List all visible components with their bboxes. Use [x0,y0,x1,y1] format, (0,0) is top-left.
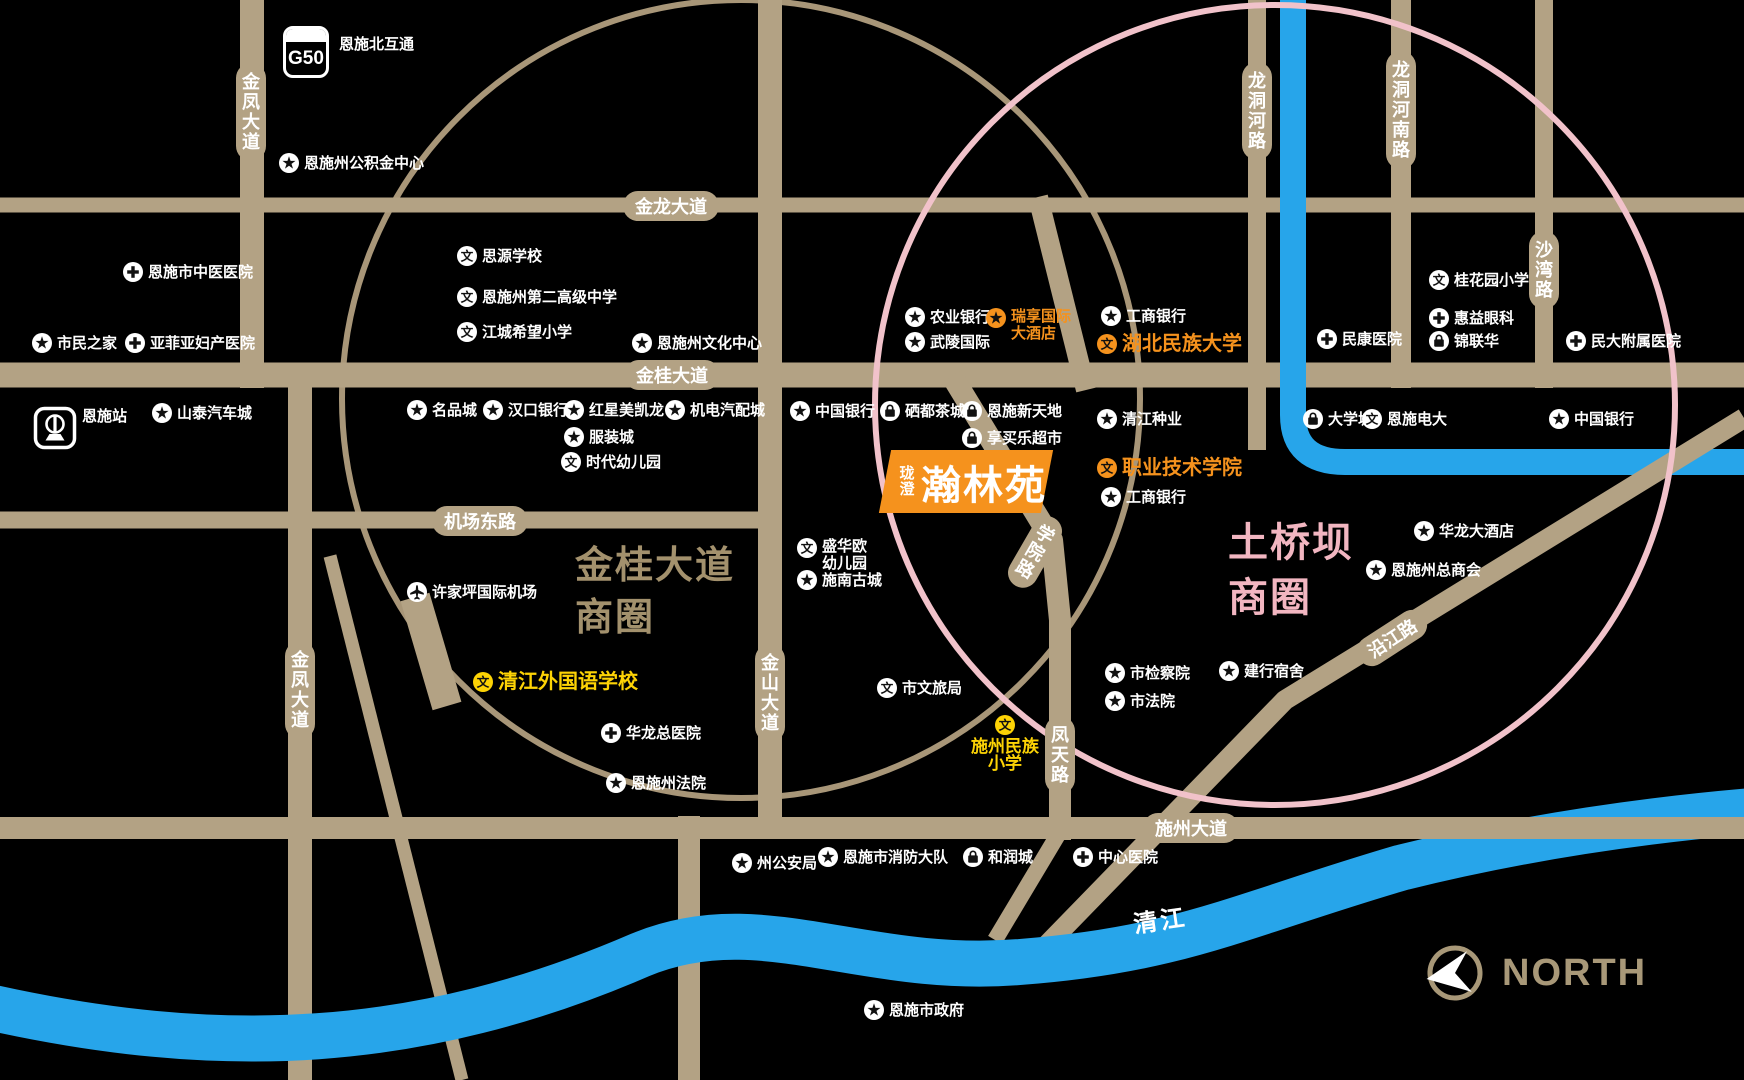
poi-label: 湖北民族大学 [1122,336,1242,353]
map-poi: 清江种业 [1097,409,1182,429]
road-label: 机场东路 [432,506,528,536]
poi-label: 机电汽配城 [690,402,765,419]
poi-label: 惠益眼科 [1454,310,1514,327]
svg-text:文: 文 [461,290,474,305]
star-icon [279,153,299,173]
school-icon: 文 [995,715,1015,735]
school-icon: 文 [1097,334,1117,354]
poi-label: 和润城 [988,849,1033,866]
school-icon: 文 [473,672,493,692]
svg-text:文: 文 [1101,461,1114,476]
bag-icon [1429,331,1449,351]
highway-code: G50 [286,42,326,75]
map-poi: 机电汽配城 [665,400,765,420]
map-poi: 亚菲亚妇产医院 [125,333,255,353]
star-icon [1105,691,1125,711]
hospital-icon [1317,329,1337,349]
map-poi: 中国银行 [790,401,875,421]
star-icon [1101,306,1121,326]
poi-label: 锦联华 [1454,333,1499,350]
map-poi: 瑞享国际大酒店 [986,308,1071,342]
map-poi: 中心医院 [1073,847,1158,867]
poi-label: 民大附属医院 [1591,333,1681,350]
school-icon: 文 [457,287,477,307]
poi-label: 中国银行 [1574,411,1634,428]
poi-label: 恩施电大 [1387,411,1447,428]
bag-icon [962,401,982,421]
district-label: 土桥坝商圈 [1228,516,1354,626]
star-icon [986,308,1006,328]
river-label: 清江 [1131,897,1189,939]
poi-label: 民康医院 [1342,331,1402,348]
poi-label: 工商银行 [1126,308,1186,325]
star-icon [1219,661,1239,681]
map-poi: 名品城 [407,400,477,420]
map-poi: 文 清江外国语学校 [473,672,638,692]
star-icon [564,400,584,420]
poi-label: 恩施市消防大队 [843,849,948,866]
compass-arrow-icon [1424,942,1486,1004]
road-label: 龙洞河路 [1242,62,1272,160]
district-label: 金桂大道商圈 [575,540,735,645]
star-icon [905,332,925,352]
project-name: 瀚林苑 [921,453,1047,511]
g50-shield-icon: G50 [283,26,329,78]
road-label: 凤天路 [1045,716,1075,794]
poi-label: 武陵国际 [930,334,990,351]
map-poi: 红星美凯龙 [564,400,664,420]
star-icon [32,333,52,353]
project-banner: 珑澄 瀚林苑 [885,450,1047,513]
road-label: 施州大道 [1143,813,1239,843]
star-icon [1097,409,1117,429]
poi-label: 清江种业 [1122,411,1182,428]
map-poi: 文 江城希望小学 [457,322,572,342]
map-poi: 许家坪国际机场 [407,582,537,602]
hospital-icon [1566,331,1586,351]
star-icon [790,401,810,421]
road-label: 沙湾路 [1529,231,1559,309]
map-poi: 民康医院 [1317,329,1402,349]
poi-label: 恩施新天地 [987,403,1062,420]
compass-label: NORTH [1502,952,1647,995]
svg-text:文: 文 [999,718,1012,733]
star-icon [1366,560,1386,580]
map-poi: 服装城 [564,427,634,447]
star-icon [606,773,626,793]
map-poi: 恩施州总商会 [1366,560,1481,580]
map-poi: 建行宿舍 [1219,661,1304,681]
map-poi: 恩施州文化中心 [632,333,762,353]
poi-label: 职业技术学院 [1122,460,1242,477]
road-label: 金龙大道 [623,191,719,221]
star-icon [1549,409,1569,429]
map-poi: 中国银行 [1549,409,1634,429]
location-map: G50 恩施北互通 珑澄 瀚林苑 清江 NORTH 恩施州公积金中心 恩施市中医… [0,0,1744,1080]
poi-label: 盛华欧幼儿园 [822,538,867,572]
road-label: 金凤大道 [285,641,315,739]
hospital-icon [1429,308,1449,328]
poi-label: 农业银行 [930,309,990,326]
map-poi: 恩施站 [33,406,127,450]
poi-label: 许家坪国际机场 [432,584,537,601]
poi-label: 州公安局 [757,855,817,872]
poi-label: 恩施州法院 [631,775,706,792]
bag-icon [962,428,982,448]
poi-label: 华龙大酒店 [1439,523,1514,540]
star-icon [1101,487,1121,507]
poi-label: 建行宿舍 [1244,663,1304,680]
poi-label: 工商银行 [1126,489,1186,506]
poi-label: 江城希望小学 [482,324,572,341]
svg-text:文: 文 [881,681,894,696]
map-poi: 文 恩施州第二高级中学 [457,287,617,307]
star-icon [152,403,172,423]
poi-label: 硒都茶城 [905,403,965,420]
map-poi: 恩施新天地 [962,401,1062,421]
air-runway [415,597,447,706]
map-poi: 州公安局 [732,853,817,873]
school-icon: 文 [1429,270,1449,290]
shield-cap [286,29,326,42]
road-label: 龙洞河南路 [1386,51,1416,169]
school-icon: 文 [457,322,477,342]
poi-label: 市检察院 [1130,665,1190,682]
star-icon [864,1000,884,1020]
road-label: 金凤大道 [236,63,266,161]
svg-text:文: 文 [477,675,490,690]
svg-text:文: 文 [461,325,474,340]
map-poi: 文 盛华欧幼儿园 [797,538,867,572]
map-poi: 文 职业技术学院 [1097,458,1242,478]
map-poi: 山泰汽车城 [152,403,252,423]
svg-text:文: 文 [801,541,814,556]
hospital-icon [1073,847,1093,867]
svg-text:文: 文 [1101,337,1114,352]
poi-label: 服装城 [589,429,634,446]
poi-label: 恩施州文化中心 [657,335,762,352]
school-icon: 文 [1097,458,1117,478]
poi-label: 红星美凯龙 [589,402,664,419]
project-prefix: 珑澄 [899,466,915,498]
map-poi: 文 时代幼儿园 [561,452,661,472]
hospital-icon [601,723,621,743]
school-icon: 文 [561,452,581,472]
bag-icon [963,847,983,867]
map-poi: 享买乐超市 [962,428,1062,448]
map-poi: 华龙大酒店 [1414,521,1514,541]
svg-text:文: 文 [1366,412,1379,427]
star-icon [483,400,503,420]
poi-label: 山泰汽车城 [177,405,252,422]
poi-label: 清江外国语学校 [498,674,638,691]
school-icon: 文 [457,246,477,266]
map-poi: 恩施市消防大队 [818,847,948,867]
map-poi: 恩施市政府 [864,1000,964,1020]
map-poi: 硒都茶城 [880,401,965,421]
map-poi: 市检察院 [1105,663,1190,683]
star-icon [905,307,925,327]
map-poi: 文 湖北民族大学 [1097,334,1242,354]
poi-label: 恩施州总商会 [1391,562,1481,579]
map-poi: 文 思源学校 [457,246,542,266]
poi-label: 市文旅局 [902,680,962,697]
svg-text:文: 文 [565,455,578,470]
bag-icon [880,401,900,421]
map-poi: 市民之家 [32,333,117,353]
map-poi: 文 桂花园小学 [1429,270,1529,290]
star-icon [564,427,584,447]
map-poi: 武陵国际 [905,332,990,352]
star-icon [732,853,752,873]
hospital-icon [123,262,143,282]
poi-label: 恩施州第二高级中学 [482,289,617,306]
svg-text:文: 文 [461,249,474,264]
map-poi: 施南古城 [797,570,882,590]
map-poi: 锦联华 [1429,331,1499,351]
poi-label: 中心医院 [1098,849,1158,866]
star-icon [818,847,838,867]
poi-label: 时代幼儿园 [586,454,661,471]
poi-label: 名品城 [432,402,477,419]
plane-icon [407,582,427,602]
map-poi: 恩施市中医医院 [123,262,253,282]
poi-label: 华龙总医院 [626,725,701,742]
map-poi: 汉口银行 [483,400,568,420]
poi-label: 瑞享国际大酒店 [1011,308,1071,342]
poi-label: 汉口银行 [508,402,568,419]
poi-label: 恩施市政府 [889,1002,964,1019]
highway-interchange: G50 恩施北互通 [283,26,414,78]
road-label: 金山大道 [755,644,785,742]
map-poi: 工商银行 [1101,306,1186,326]
school-icon: 文 [797,538,817,558]
poi-label: 恩施站 [82,408,127,425]
svg-text:文: 文 [1433,273,1446,288]
poi-label: 恩施市中医医院 [148,264,253,281]
map-poi: 文 市文旅局 [877,678,962,698]
train-icon [33,406,77,450]
poi-label: 恩施州公积金中心 [304,155,424,172]
map-poi: 工商银行 [1101,487,1186,507]
map-poi: 文 恩施电大 [1362,409,1447,429]
school-icon: 文 [1362,409,1382,429]
poi-label: 思源学校 [482,248,542,265]
map-poi: 和润城 [963,847,1033,867]
star-icon [1105,663,1125,683]
map-poi: 民大附属医院 [1566,331,1681,351]
map-poi: 恩施州法院 [606,773,706,793]
hospital-icon [125,333,145,353]
map-poi: 恩施州公积金中心 [279,153,424,173]
map-poi: 华龙总医院 [601,723,701,743]
poi-label: 市法院 [1130,693,1175,710]
bag-icon [1303,409,1323,429]
map-poi: 惠益眼科 [1429,308,1514,328]
star-icon [797,570,817,590]
map-poi: 文 施州民族小学 [971,715,1039,772]
compass: NORTH [1424,942,1647,1004]
poi-label: 享买乐超市 [987,430,1062,447]
star-icon [665,400,685,420]
star-icon [1414,521,1434,541]
road-label: 金桂大道 [624,360,720,390]
map-poi: 农业银行 [905,307,990,327]
poi-label: 桂花园小学 [1454,272,1529,289]
school-icon: 文 [877,678,897,698]
star-icon [632,333,652,353]
poi-label: 市民之家 [57,335,117,352]
star-icon [407,400,427,420]
poi-label: 亚菲亚妇产医院 [150,335,255,352]
poi-label: 中国银行 [815,403,875,420]
poi-label: 施南古城 [822,572,882,589]
interchange-label: 恩施北互通 [339,33,414,54]
jingui-circle [342,0,1140,798]
poi-label: 施州民族小学 [971,738,1039,772]
map-poi: 市法院 [1105,691,1175,711]
